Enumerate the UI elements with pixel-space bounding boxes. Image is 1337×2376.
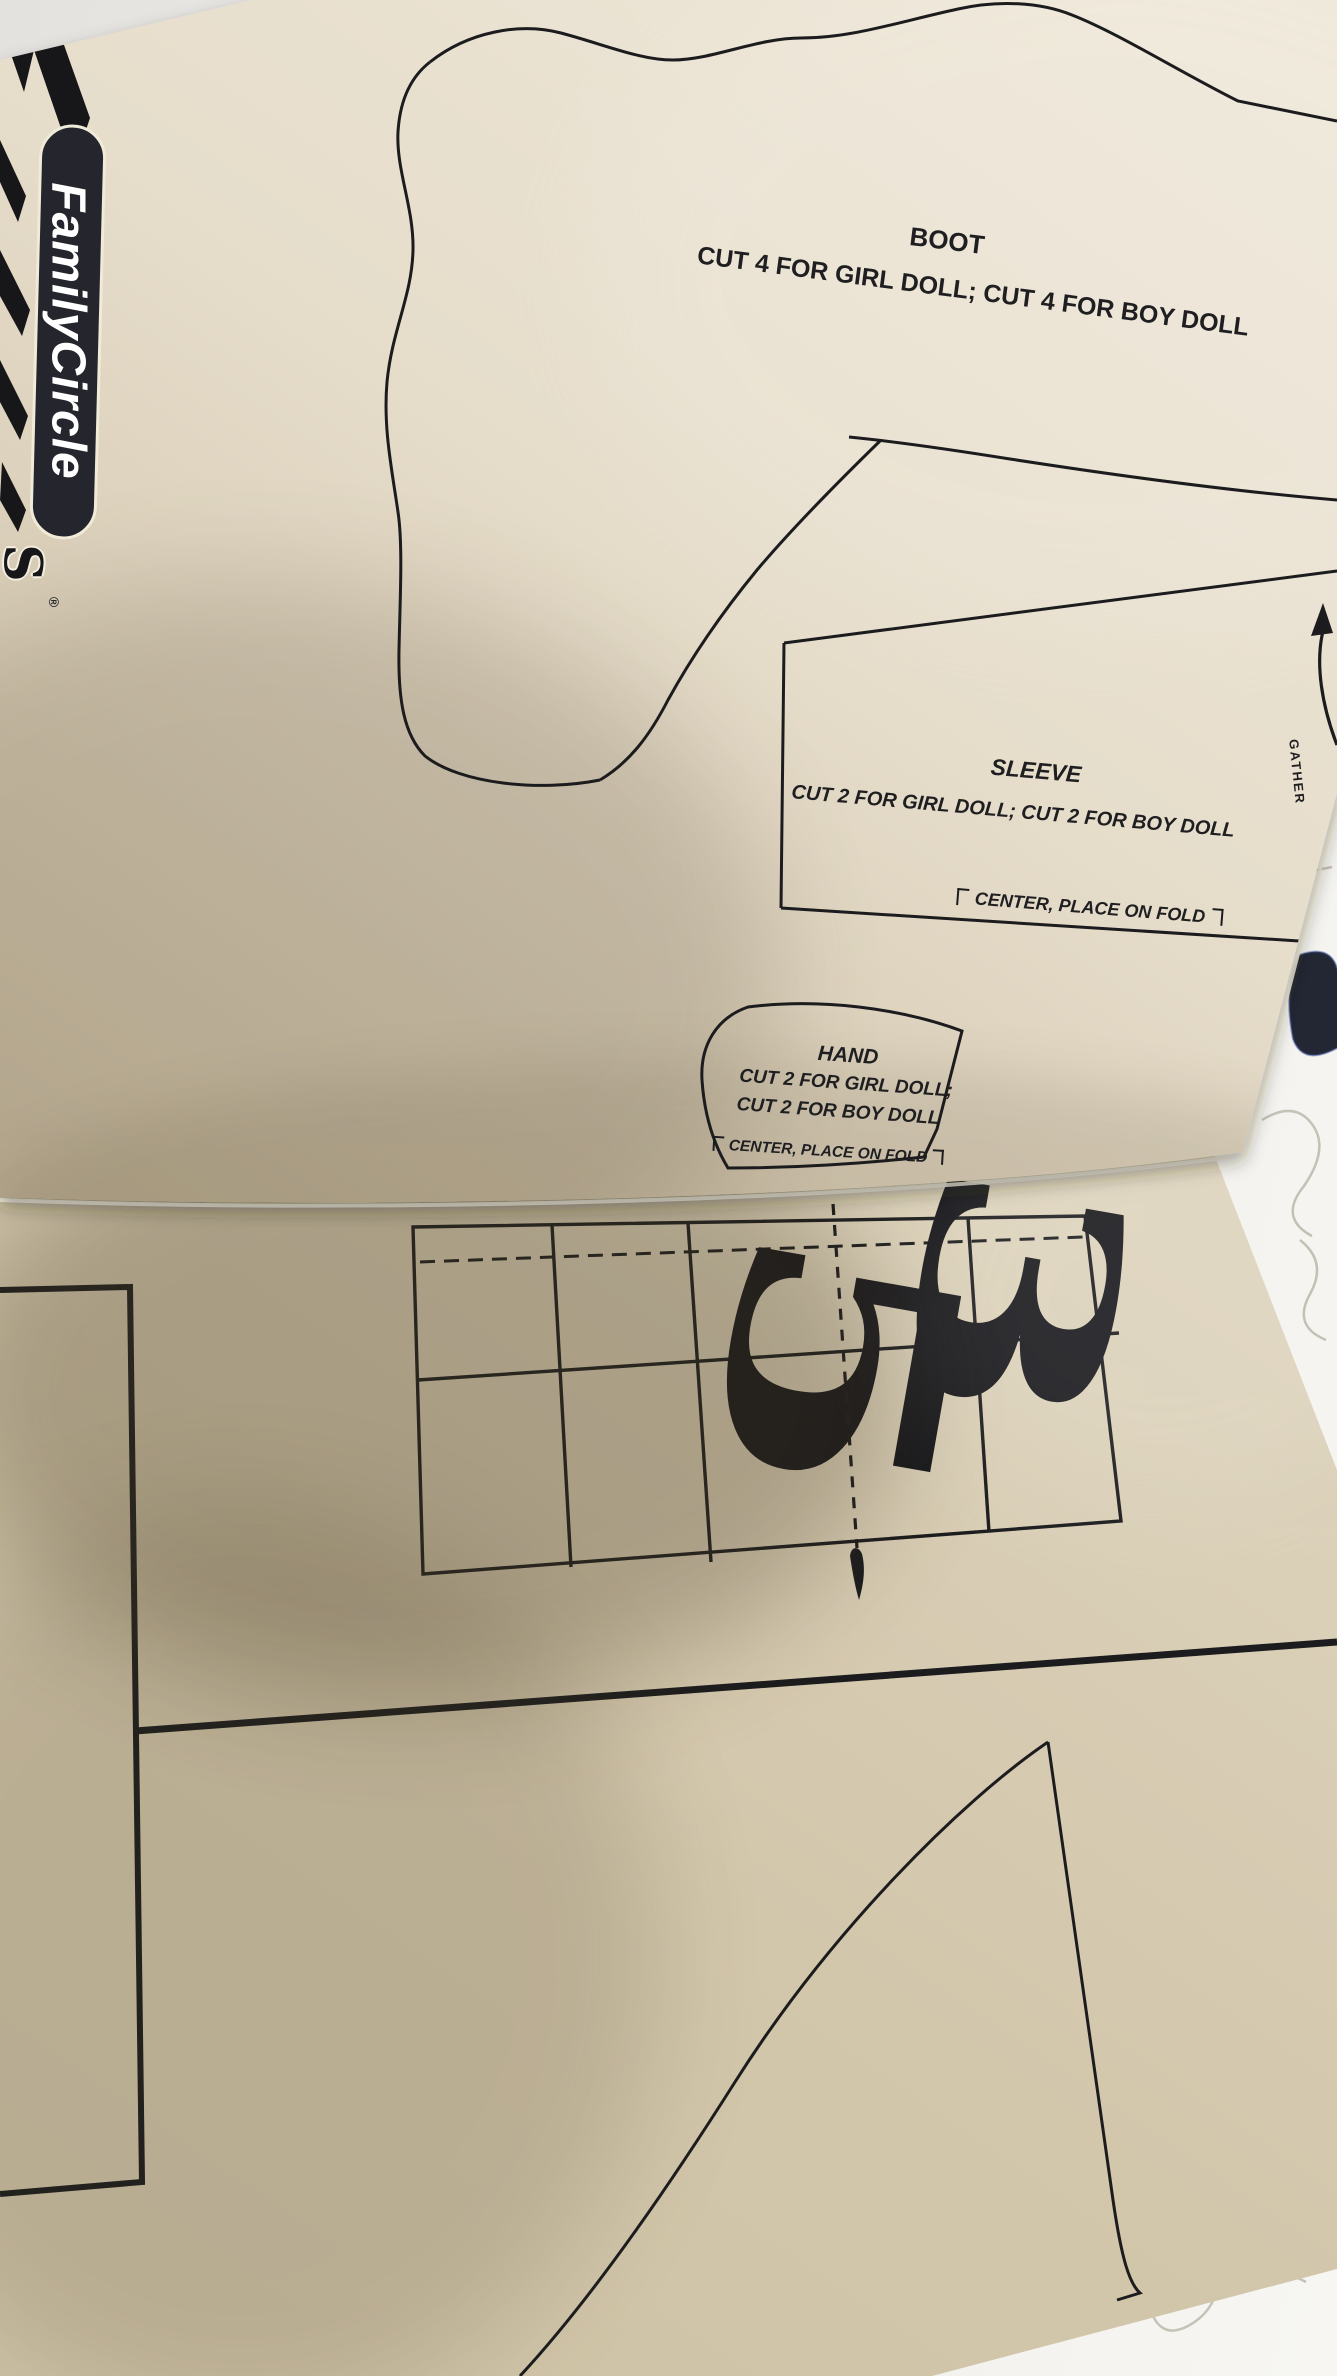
fold-bracket-right — [932, 1149, 943, 1165]
fold-bracket-right — [1211, 908, 1224, 926]
scene-artwork: 5 3 — [0, 0, 1337, 2376]
fold-bracket-left — [712, 1136, 723, 1152]
fold-bracket-left — [956, 888, 969, 906]
sketch-squiggle-right-2 — [1300, 1240, 1326, 1340]
family-circle-brand: FamilyCircle — [41, 182, 96, 479]
photo-scene: 5 3 — [0, 0, 1337, 2376]
weekend-crafts-s-letter: S — [0, 544, 53, 582]
sketch-squiggle-right-1 — [1262, 1111, 1319, 1236]
hand-title: HAND — [817, 1042, 879, 1070]
registered-trademark: ® — [46, 597, 62, 607]
